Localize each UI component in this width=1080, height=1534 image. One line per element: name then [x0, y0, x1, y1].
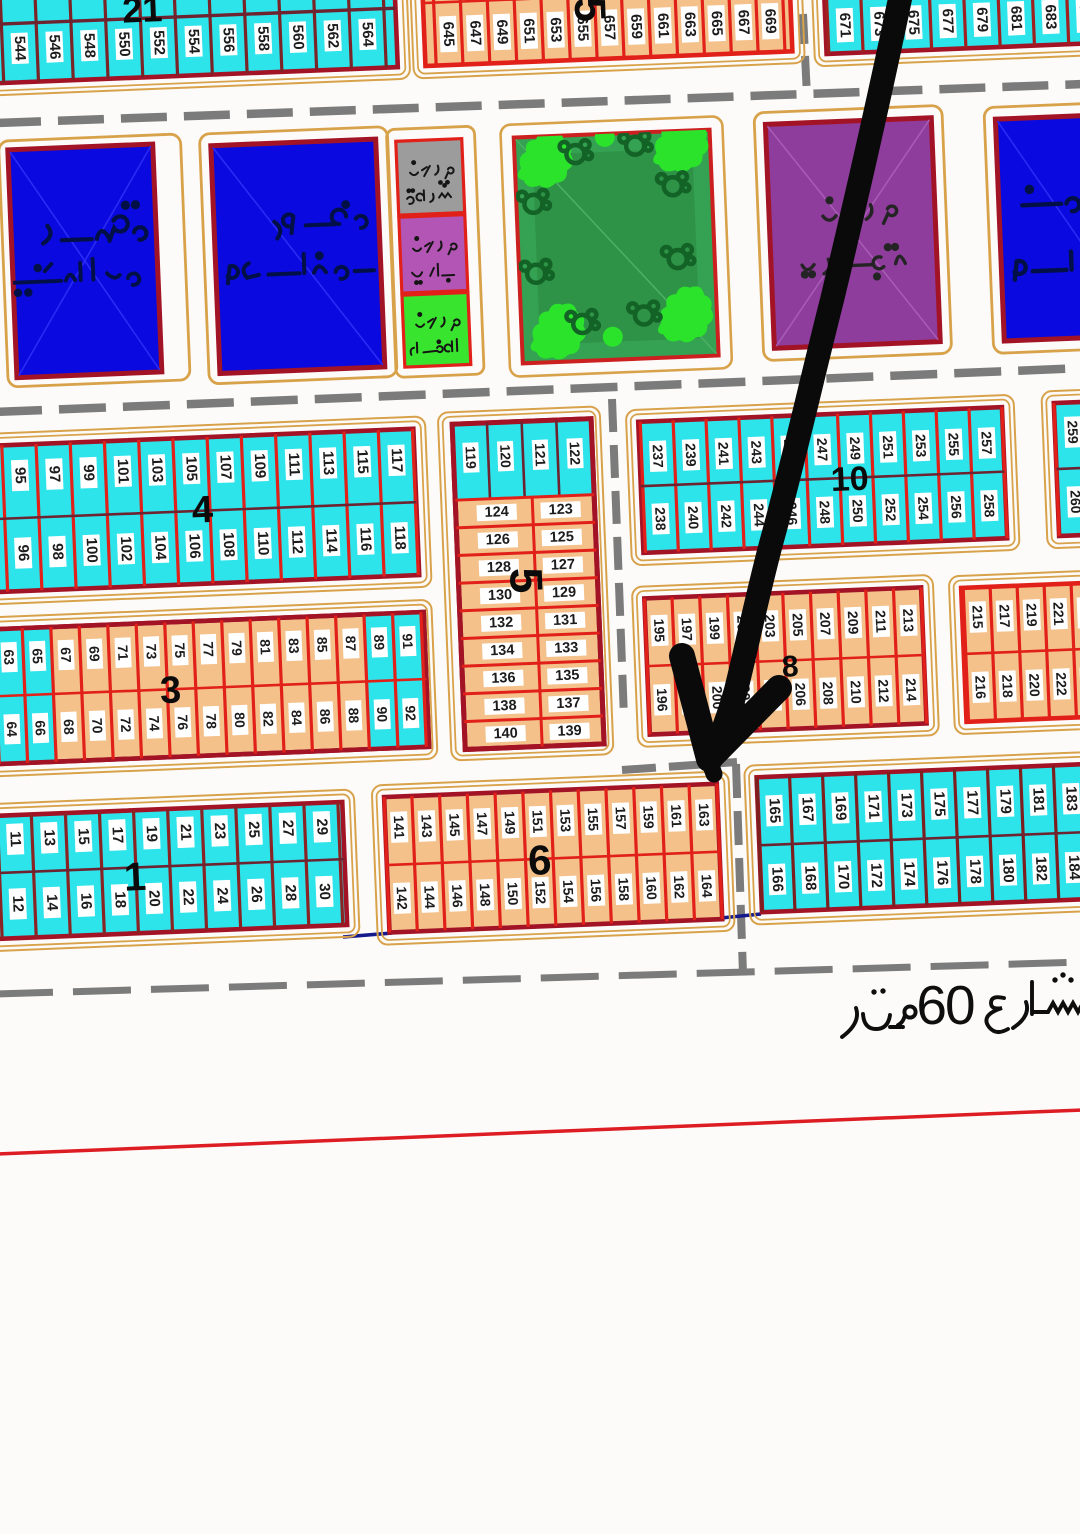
svg-text:77: 77	[200, 641, 217, 657]
svg-text:89: 89	[371, 634, 388, 650]
svg-text:103: 103	[148, 457, 166, 483]
svg-text:125: 125	[549, 529, 574, 546]
svg-text:199: 199	[706, 616, 723, 640]
svg-text:86: 86	[317, 708, 334, 724]
svg-text:113: 113	[319, 451, 337, 476]
svg-text:258: 258	[981, 494, 998, 518]
svg-text:114: 114	[322, 528, 340, 554]
svg-text:216: 216	[972, 675, 989, 699]
svg-text:249: 249	[847, 436, 864, 460]
svg-text:164: 164	[699, 874, 716, 898]
svg-text:13: 13	[40, 829, 58, 846]
svg-text:212: 212	[875, 679, 892, 703]
svg-text:243: 243	[748, 440, 765, 464]
svg-text:80: 80	[232, 712, 249, 728]
svg-text:151: 151	[529, 810, 546, 834]
svg-text:139: 139	[557, 723, 582, 740]
svg-text:11: 11	[6, 831, 24, 848]
svg-text:240: 240	[685, 506, 702, 530]
svg-text:550: 550	[115, 31, 133, 57]
svg-text:197: 197	[679, 617, 696, 641]
svg-text:19: 19	[143, 825, 161, 842]
svg-text:78: 78	[203, 713, 220, 729]
svg-text:10: 10	[830, 460, 869, 499]
svg-text:166: 166	[768, 867, 786, 893]
svg-text:79: 79	[229, 640, 246, 656]
svg-text:63: 63	[1, 649, 18, 665]
svg-text:122: 122	[567, 441, 584, 465]
svg-text:145: 145	[446, 813, 463, 837]
svg-text:677: 677	[939, 8, 957, 34]
svg-text:251: 251	[880, 435, 897, 459]
svg-text:554: 554	[185, 28, 203, 54]
svg-text:87: 87	[343, 635, 360, 651]
svg-text:238: 238	[652, 507, 669, 531]
svg-text:109: 109	[251, 453, 269, 479]
svg-text:100: 100	[83, 537, 101, 563]
svg-text:671: 671	[836, 12, 854, 38]
svg-text:6: 6	[527, 836, 552, 884]
svg-text:65: 65	[29, 648, 46, 664]
svg-text:136: 136	[491, 670, 516, 687]
svg-text:88: 88	[345, 707, 362, 723]
svg-text:170: 170	[834, 864, 852, 890]
svg-text:68: 68	[61, 719, 78, 735]
svg-text:645: 645	[439, 21, 457, 47]
svg-text:208: 208	[820, 681, 837, 705]
svg-text:221: 221	[1050, 602, 1067, 626]
svg-text:255: 255	[945, 432, 962, 456]
svg-text:106: 106	[185, 533, 203, 559]
svg-text:177: 177	[963, 790, 981, 816]
svg-text:168: 168	[801, 865, 819, 891]
svg-text:175: 175	[930, 791, 948, 817]
svg-text:81: 81	[257, 639, 274, 655]
svg-text:556: 556	[219, 27, 237, 53]
svg-text:669: 669	[761, 8, 779, 34]
svg-text:84: 84	[289, 710, 306, 726]
svg-text:218: 218	[999, 674, 1016, 698]
svg-text:195: 195	[651, 618, 668, 642]
svg-text:12: 12	[9, 895, 27, 912]
svg-text:22: 22	[179, 888, 197, 905]
svg-text:665: 665	[708, 10, 726, 36]
svg-text:260: 260	[1067, 490, 1080, 514]
svg-text:104: 104	[151, 535, 169, 561]
svg-text:108: 108	[220, 532, 238, 558]
svg-text:21: 21	[177, 824, 195, 841]
svg-text:651: 651	[520, 18, 538, 44]
svg-text:96: 96	[14, 544, 32, 561]
svg-text:242: 242	[718, 504, 735, 528]
svg-text:25: 25	[564, 0, 615, 23]
svg-text:257: 257	[978, 431, 995, 455]
svg-text:14: 14	[43, 894, 61, 912]
svg-text:141: 141	[391, 815, 408, 839]
svg-text:120: 120	[497, 444, 514, 468]
svg-text:71: 71	[115, 645, 132, 661]
svg-text:143: 143	[418, 814, 435, 838]
svg-text:28: 28	[282, 884, 300, 901]
svg-text:661: 661	[654, 13, 672, 39]
svg-text:132: 132	[489, 615, 514, 632]
svg-text:82: 82	[260, 711, 277, 727]
svg-text:181: 181	[1029, 787, 1047, 813]
svg-text:83: 83	[286, 638, 303, 654]
svg-text:184: 184	[1065, 855, 1080, 881]
svg-text:156: 156	[588, 878, 605, 902]
svg-text:241: 241	[715, 442, 732, 466]
svg-text:176: 176	[933, 860, 951, 886]
svg-text:174: 174	[900, 861, 918, 887]
svg-text:126: 126	[485, 532, 510, 549]
svg-text:248: 248	[817, 500, 834, 524]
svg-text:171: 171	[864, 794, 882, 820]
svg-text:144: 144	[421, 885, 438, 909]
svg-text:217: 217	[996, 604, 1013, 628]
svg-text:73: 73	[143, 643, 160, 659]
svg-text:207: 207	[817, 612, 834, 636]
svg-text:85: 85	[314, 637, 331, 653]
svg-text:115: 115	[353, 449, 371, 474]
svg-text:653: 653	[547, 17, 565, 43]
svg-text:4: 4	[191, 489, 214, 532]
svg-text:129: 129	[552, 584, 577, 601]
svg-text:69: 69	[86, 646, 103, 662]
svg-text:135: 135	[555, 667, 580, 684]
svg-text:219: 219	[1023, 603, 1040, 627]
svg-text:1: 1	[123, 855, 147, 900]
svg-text:116: 116	[356, 527, 374, 552]
svg-text:21: 21	[121, 0, 163, 31]
svg-text:681: 681	[1007, 5, 1025, 31]
svg-text:146: 146	[449, 884, 466, 908]
svg-text:155: 155	[585, 807, 602, 831]
svg-text:134: 134	[490, 642, 515, 659]
svg-text:30: 30	[316, 883, 334, 900]
svg-text:150: 150	[505, 882, 522, 906]
svg-text:158: 158	[615, 877, 632, 901]
svg-text:25: 25	[245, 821, 263, 838]
svg-text:29: 29	[313, 818, 331, 835]
svg-text:214: 214	[903, 678, 920, 702]
svg-text:159: 159	[640, 805, 657, 829]
svg-text:20: 20	[145, 890, 163, 907]
svg-text:102: 102	[117, 536, 135, 562]
svg-text:137: 137	[556, 695, 581, 712]
svg-text:99: 99	[80, 464, 98, 481]
svg-text:209: 209	[845, 611, 862, 635]
svg-text:562: 562	[324, 23, 342, 49]
svg-text:548: 548	[80, 33, 98, 59]
svg-text:239: 239	[683, 443, 700, 467]
svg-text:178: 178	[966, 859, 984, 885]
svg-text:67: 67	[58, 647, 75, 663]
svg-text:23: 23	[211, 822, 229, 839]
svg-text:206: 206	[792, 682, 809, 706]
svg-text:105: 105	[182, 456, 200, 482]
svg-text:211: 211	[872, 610, 889, 633]
svg-text:161: 161	[668, 804, 685, 828]
svg-text:17: 17	[109, 826, 127, 843]
svg-text:3: 3	[159, 669, 182, 712]
svg-text:72: 72	[118, 716, 135, 732]
svg-text:26: 26	[247, 886, 265, 903]
svg-text:142: 142	[394, 886, 411, 910]
svg-text:64: 64	[4, 721, 21, 737]
svg-text:60: 60	[916, 974, 974, 1036]
svg-text:112: 112	[288, 530, 306, 555]
svg-text:683: 683	[1042, 4, 1060, 30]
svg-text:131: 131	[553, 612, 578, 629]
svg-text:76: 76	[175, 714, 192, 730]
svg-text:5: 5	[500, 567, 553, 595]
svg-text:215: 215	[969, 605, 986, 629]
svg-text:663: 663	[681, 12, 699, 38]
svg-text:74: 74	[146, 715, 163, 731]
svg-text:560: 560	[289, 24, 307, 50]
svg-text:247: 247	[814, 438, 831, 462]
svg-text:160: 160	[643, 876, 660, 900]
svg-text:101: 101	[114, 458, 132, 484]
svg-text:148: 148	[477, 883, 494, 907]
svg-text:253: 253	[913, 434, 930, 458]
svg-text:90: 90	[374, 706, 391, 722]
svg-text:173: 173	[897, 792, 915, 818]
svg-text:163: 163	[696, 803, 713, 827]
svg-text:162: 162	[671, 875, 688, 899]
svg-text:70: 70	[89, 718, 106, 734]
svg-text:91: 91	[400, 633, 417, 649]
svg-text:183: 183	[1062, 786, 1080, 812]
svg-text:127: 127	[551, 557, 576, 574]
svg-text:24: 24	[213, 887, 231, 905]
svg-text:179: 179	[996, 789, 1014, 815]
svg-text:196: 196	[654, 688, 671, 712]
svg-text:564: 564	[358, 21, 376, 47]
svg-text:152: 152	[532, 881, 549, 905]
svg-text:180: 180	[999, 857, 1017, 883]
svg-text:27: 27	[279, 819, 297, 836]
svg-text:138: 138	[492, 698, 517, 715]
svg-text:147: 147	[474, 812, 491, 836]
svg-text:98: 98	[49, 543, 67, 560]
svg-text:119: 119	[462, 446, 479, 469]
svg-text:250: 250	[849, 499, 866, 523]
svg-text:213: 213	[900, 608, 917, 632]
svg-text:256: 256	[948, 495, 965, 519]
svg-text:205: 205	[789, 613, 806, 637]
svg-text:220: 220	[1026, 673, 1043, 697]
svg-text:140: 140	[493, 725, 518, 742]
svg-text:95: 95	[11, 467, 29, 484]
svg-text:118: 118	[391, 525, 409, 550]
svg-text:97: 97	[46, 465, 64, 482]
svg-text:124: 124	[484, 504, 509, 521]
svg-text:182: 182	[1032, 856, 1050, 882]
svg-text:110: 110	[254, 531, 272, 556]
svg-text:679: 679	[973, 7, 991, 33]
svg-text:167: 167	[798, 796, 816, 822]
svg-text:172: 172	[867, 863, 885, 889]
svg-text:111: 111	[285, 452, 303, 476]
svg-text:92: 92	[402, 705, 419, 721]
svg-text:210: 210	[848, 680, 865, 704]
svg-text:16: 16	[77, 892, 95, 909]
svg-text:546: 546	[46, 34, 64, 60]
svg-text:667: 667	[734, 9, 752, 35]
svg-text:66: 66	[32, 720, 49, 736]
svg-text:15: 15	[74, 828, 92, 845]
svg-text:544: 544	[11, 35, 29, 61]
svg-text:123: 123	[548, 501, 573, 518]
svg-text:647: 647	[466, 20, 484, 46]
svg-text:153: 153	[557, 808, 574, 832]
svg-text:133: 133	[554, 640, 579, 657]
svg-text:237: 237	[650, 444, 667, 468]
svg-text:254: 254	[915, 496, 932, 520]
svg-text:154: 154	[560, 879, 577, 903]
svg-text:649: 649	[493, 19, 511, 45]
svg-text:552: 552	[150, 30, 168, 56]
svg-text:558: 558	[254, 26, 272, 52]
svg-text:222: 222	[1053, 672, 1070, 696]
svg-text:107: 107	[216, 454, 234, 480]
svg-text:252: 252	[882, 498, 899, 522]
svg-text:75: 75	[172, 642, 189, 658]
svg-text:121: 121	[532, 443, 549, 467]
svg-text:117: 117	[388, 448, 406, 473]
svg-text:169: 169	[831, 795, 849, 821]
svg-text:259: 259	[1065, 420, 1080, 444]
svg-text:157: 157	[613, 806, 630, 830]
svg-text:149: 149	[502, 811, 519, 835]
svg-text:165: 165	[765, 798, 783, 824]
svg-text:659: 659	[627, 14, 645, 40]
